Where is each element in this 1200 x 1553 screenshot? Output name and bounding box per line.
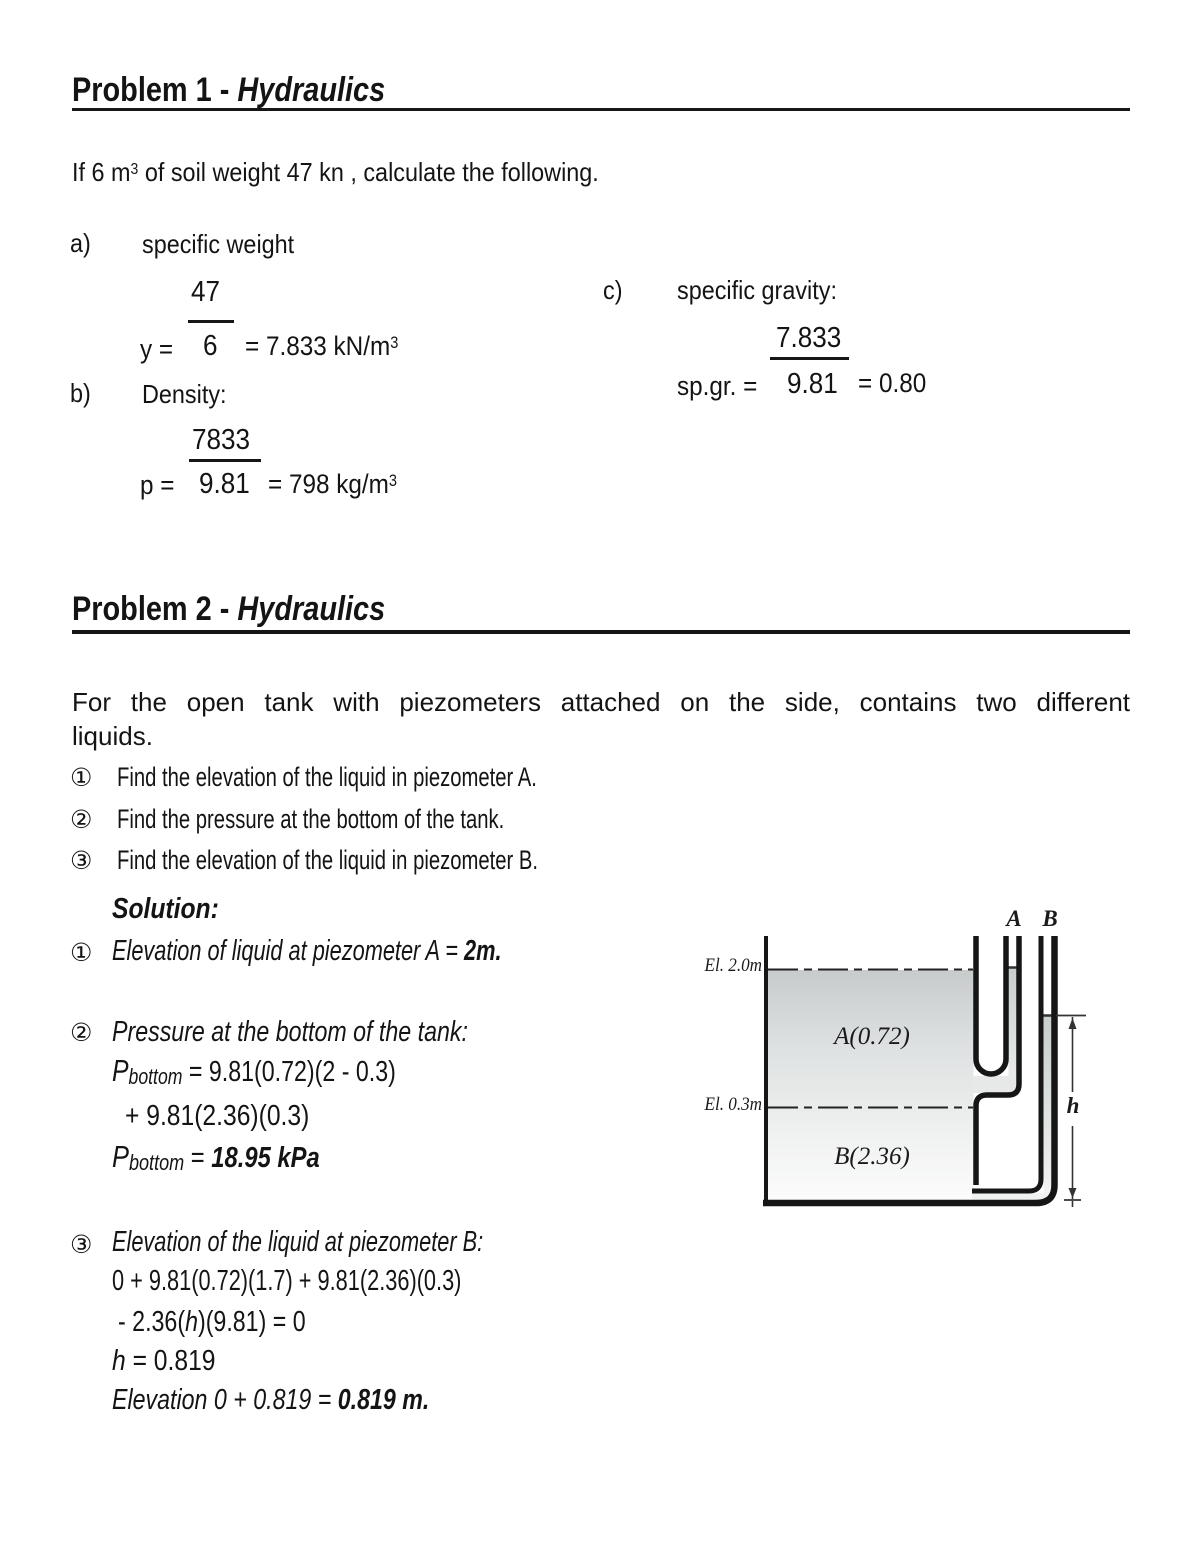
part-c-fraction-numerator: 7.833	[776, 322, 841, 354]
solution3-eq4-text: Elevation 0 + 0.819 =	[112, 1384, 338, 1416]
document-page: Problem 1 - Hydraulics If 6 m3 of soil w…	[0, 0, 1200, 1553]
part-a-result-text: = 7.833 kN/m	[245, 331, 390, 361]
pressure-subscript: bottom	[129, 1150, 184, 1175]
problem1-title: Problem 1 - Hydraulics	[72, 71, 385, 109]
pressure-symbol: P	[112, 1053, 129, 1088]
solution1-answer: 2m.	[464, 935, 501, 967]
solution2-number: ②	[70, 1019, 92, 1047]
solution2-eq1-rest: = 9.81(0.72)(2 - 0.3)	[182, 1056, 395, 1088]
problem2-title-subject: Hydraulics	[237, 590, 385, 628]
h-variable: h	[185, 1306, 198, 1338]
part-c-label: c)	[603, 276, 623, 305]
pressure-symbol: P	[112, 1139, 129, 1174]
problem2-title: Problem 2 - Hydraulics	[72, 590, 385, 628]
intro-superscript: 3	[131, 161, 139, 178]
question3-number: ③	[70, 847, 92, 875]
solution3-eq3-rest: = 0.819	[126, 1345, 216, 1377]
part-a-label: a)	[70, 229, 91, 258]
part-a-result-superscript: 3	[390, 334, 398, 352]
solution3-answer: 0.819 m.	[338, 1384, 430, 1416]
part-c-lhs: sp.gr. =	[677, 371, 757, 401]
part-b-fraction-bar	[189, 459, 261, 462]
part-a-fraction-numerator: 47	[191, 276, 220, 308]
elevation-2m-label: El. 2.0m	[672, 956, 762, 976]
question3-text: Find the elevation of the liquid in piez…	[117, 845, 538, 875]
part-b-result-text: = 798 kg/m	[268, 469, 389, 499]
h-variable: h	[112, 1345, 126, 1377]
dimension-arrow-down	[1069, 1188, 1077, 1198]
part-c-name: specific gravity:	[677, 276, 837, 305]
height-dimension-label: h	[1062, 1094, 1084, 1118]
question1-text: Find the elevation of the liquid in piez…	[117, 762, 537, 792]
part-c-fraction-denominator: 9.81	[787, 368, 838, 400]
part-b-fraction-denominator: 9.81	[199, 468, 250, 500]
tank-diagram	[700, 900, 1160, 1230]
question1-number: ①	[70, 764, 92, 792]
solution3-eq2-post: )(9.81) = 0	[198, 1306, 306, 1338]
part-a-fraction-denominator: 6	[203, 330, 218, 362]
solution1-text: Elevation of liquid at piezometer A =	[112, 935, 464, 967]
solution2-answer: 18.95 kPa	[211, 1142, 319, 1174]
solution-heading: Solution:	[112, 893, 219, 925]
piezometer-b-label: B	[1038, 907, 1062, 931]
solution3-eq4: Elevation 0 + 0.819 = 0.819 m.	[112, 1384, 429, 1416]
problem1-title-subject: Hydraulics	[237, 71, 385, 109]
question2-text: Find the pressure at the bottom of the t…	[117, 804, 504, 834]
problem2-intro-line1: For the open tank with piezometers attac…	[72, 682, 1130, 722]
piezometer-b-liquid	[1044, 1015, 1052, 1196]
problem1-underline	[72, 108, 1130, 111]
solution2-eq1: Pbottom = 9.81(0.72)(2 - 0.3)	[112, 1054, 396, 1089]
elevation-03m-label: El. 0.3m	[672, 1095, 762, 1115]
part-b-fraction-numerator: 7833	[192, 424, 250, 456]
tank-right-wall-upper-and-tube-a	[976, 936, 1006, 1074]
piezometer-a-duct-liquid	[973, 1076, 1016, 1093]
part-c-result: = 0.80	[858, 368, 926, 398]
part-b-name: Density:	[142, 380, 227, 409]
liquid-b-label: B(2.36)	[800, 1144, 944, 1170]
part-b-result-superscript: 3	[389, 472, 397, 490]
problem1-title-prefix: Problem 1 -	[72, 71, 237, 109]
part-a-result: = 7.833 kN/m3	[245, 331, 398, 361]
part-a-name: specific weight	[142, 230, 294, 259]
pressure-subscript: bottom	[129, 1064, 183, 1089]
dimension-arrow-up	[1069, 1018, 1077, 1029]
solution1-line: Elevation of liquid at piezometer A = 2m…	[112, 935, 502, 967]
solution3-eq3: h = 0.819	[112, 1345, 216, 1377]
part-b-result: = 798 kg/m3	[268, 469, 397, 499]
liquid-a-label: A(0.72)	[800, 1024, 944, 1050]
part-c-fraction-bar	[770, 357, 849, 360]
intro-text: If 6 m	[72, 157, 131, 187]
solution2-eq2: + 9.81(2.36)(0.3)	[125, 1100, 309, 1132]
problem2-intro-line2: liquids.	[72, 722, 153, 751]
problem2-title-prefix: Problem 2 -	[72, 590, 237, 628]
part-a-lhs: y =	[140, 334, 173, 364]
problem1-intro: If 6 m3 of soil weight 47 kn , calculate…	[72, 158, 599, 187]
intro-text-rest: of soil weight 47 kn , calculate the fol…	[138, 157, 598, 187]
solution3-number: ③	[70, 1231, 92, 1259]
solution2-eq3-equals: =	[184, 1142, 211, 1174]
solution3-eq2-pre: - 2.36(	[118, 1306, 185, 1338]
piezometer-a-label: A	[1002, 907, 1026, 931]
solution1-number: ①	[70, 939, 92, 967]
problem2-underline	[72, 630, 1130, 634]
solution3-eq2: - 2.36(h)(9.81) = 0	[118, 1306, 306, 1338]
piezometer-b-duct-liquid	[972, 1193, 1046, 1201]
piezometer-a-liquid	[1009, 967, 1017, 1078]
question2-number: ②	[70, 806, 92, 834]
part-b-label: b)	[70, 379, 91, 408]
part-a-fraction-bar	[188, 320, 234, 323]
solution3-eq1: 0 + 9.81(0.72)(1.7) + 9.81(2.36)(0.3)	[112, 1265, 461, 1297]
solution3-title: Elevation of the liquid at piezometer B:	[112, 1226, 483, 1258]
part-b-lhs: p =	[140, 470, 174, 500]
solution2-eq3: Pbottom = 18.95 kPa	[112, 1140, 320, 1175]
solution2-title: Pressure at the bottom of the tank:	[112, 1016, 468, 1048]
